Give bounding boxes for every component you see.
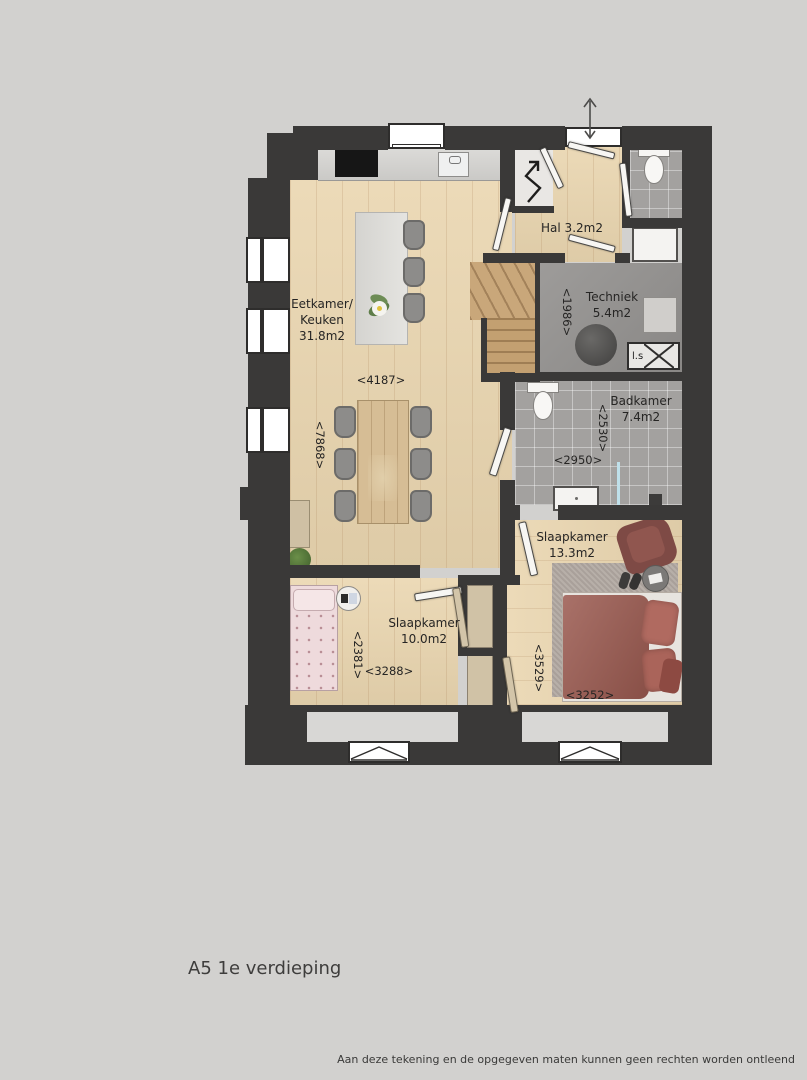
wall-top-a	[293, 126, 388, 150]
duvet	[563, 595, 649, 699]
dim-eetkamer-height: <7868>	[313, 421, 327, 470]
boiler-icon	[575, 324, 617, 366]
washing-machine	[632, 227, 678, 262]
label-slaapkamer-groot: Slaapkamer 13.3m2	[536, 530, 607, 562]
pillow-small	[658, 658, 684, 695]
dim-slaapkamer-klein-height: <2381>	[351, 631, 365, 680]
island-chair	[403, 220, 425, 250]
label-eetkamer: Eetkamer/ Keuken 31.8m2	[291, 297, 353, 344]
entry-arrow-icon	[578, 96, 602, 142]
window-opening-icon	[560, 743, 620, 761]
double-bed	[562, 592, 682, 702]
wall-hal-bottom-left	[483, 253, 565, 263]
label-techniek: Techniek 5.4m2	[586, 290, 638, 322]
stairs-direction-arrow-icon	[518, 150, 548, 206]
shaft-cross-icon	[644, 344, 674, 368]
sideboard	[288, 500, 310, 548]
dining-chair	[410, 448, 432, 480]
side-table	[642, 565, 669, 592]
dim-eetkamer-width: <4187>	[357, 373, 406, 387]
dim-slaapkamer-groot-height: <3529>	[532, 644, 546, 693]
table-decor	[368, 455, 398, 501]
wall-badkamer-left-upper	[500, 372, 515, 430]
pillow	[640, 599, 680, 647]
sink-icon	[438, 152, 469, 177]
window-left-2-inner	[262, 308, 290, 354]
dim-slaapkamer-klein-width: <3288>	[365, 664, 414, 678]
window-recess-bottom-1	[307, 712, 458, 742]
label-badkamer: Badkamer 7.4m2	[610, 394, 671, 426]
single-bed-pillow	[293, 589, 335, 611]
wall-notch-left	[240, 487, 249, 520]
wall-closet-top	[458, 575, 520, 585]
dim-badkamer-height: <2530>	[596, 404, 610, 453]
kitchen-island	[355, 212, 408, 345]
wall-slaapkamer-groot-left	[493, 583, 507, 715]
wall-slaapkamer-klein-top	[287, 565, 420, 578]
window-opening-icon	[350, 743, 408, 761]
wall-slaapkamer-groot-top-left	[500, 505, 520, 520]
wall-badkamer-left-lower	[500, 480, 515, 583]
dim-slaapkamer-groot-width: <3252>	[566, 688, 615, 702]
disclaimer: Aan deze tekening en de opgegeven maten …	[337, 1053, 795, 1066]
dining-chair	[410, 490, 432, 522]
toilet-icon	[527, 382, 559, 422]
shaft-box: l.s	[627, 342, 680, 370]
wall-stairs-left	[481, 318, 487, 380]
window-left-2-outer	[246, 308, 262, 354]
cooktop-icon	[335, 150, 378, 177]
dim-techniek-height: <1986>	[560, 288, 574, 337]
wall-toilet-bottom	[622, 218, 682, 228]
dining-chair	[334, 448, 356, 480]
wall-slaapkamer-groot-top-right	[558, 505, 682, 520]
shaft-label: l.s	[629, 351, 643, 362]
window-left-3-inner	[262, 407, 290, 453]
stairs-straight	[487, 318, 537, 375]
dim-badkamer-width: <2950>	[554, 453, 603, 467]
closet-upper	[467, 585, 493, 648]
techniek-cabinet	[643, 297, 677, 333]
island-chair	[403, 257, 425, 287]
label-slaapkamer-klein: Slaapkamer 10.0m2	[388, 616, 459, 648]
dining-chair	[410, 406, 432, 438]
window-top-sill	[392, 144, 441, 148]
window-left-1-inner	[262, 237, 290, 283]
dining-chair	[334, 406, 356, 438]
wall-badkamer-top	[540, 372, 682, 381]
dining-chair	[334, 490, 356, 522]
page-title: A5 1e verdieping	[188, 958, 341, 979]
wall-techniek-left	[535, 262, 540, 373]
label-hal: Hal 3.2m2	[541, 221, 603, 237]
window-left-3-outer	[246, 407, 262, 453]
window-bottom-2	[558, 741, 622, 763]
window-bottom-1	[348, 741, 410, 763]
wall-right	[682, 126, 712, 765]
window-recess-bottom-2	[522, 712, 668, 742]
floor-plan: l.s	[0, 0, 807, 1080]
wall-kitchen-side	[293, 150, 318, 180]
wall-hal-bottom-right	[615, 253, 630, 263]
wall-top-b	[445, 126, 565, 150]
bedside-table	[336, 586, 361, 611]
flower-icon	[366, 293, 392, 323]
wall-closet-mid	[458, 648, 498, 656]
wall-meterkast-bottom	[512, 206, 554, 213]
window-left-1-outer	[246, 237, 262, 283]
toilet-icon	[638, 146, 670, 186]
stairs-winder	[470, 262, 537, 320]
island-chair	[403, 293, 425, 323]
